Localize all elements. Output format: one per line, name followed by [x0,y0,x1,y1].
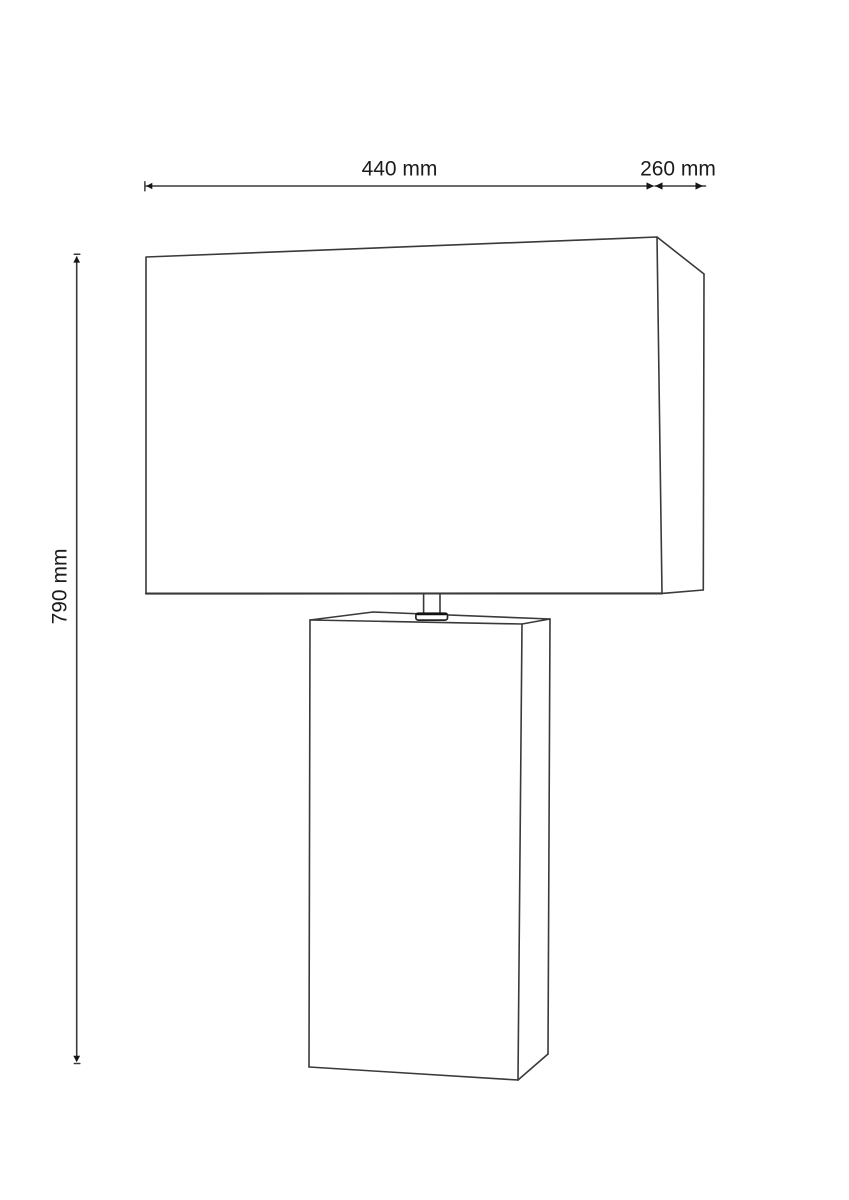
svg-text:260 mm: 260 mm [640,158,716,181]
svg-text:790 mm: 790 mm [49,549,72,625]
svg-text:440 mm: 440 mm [362,158,438,181]
